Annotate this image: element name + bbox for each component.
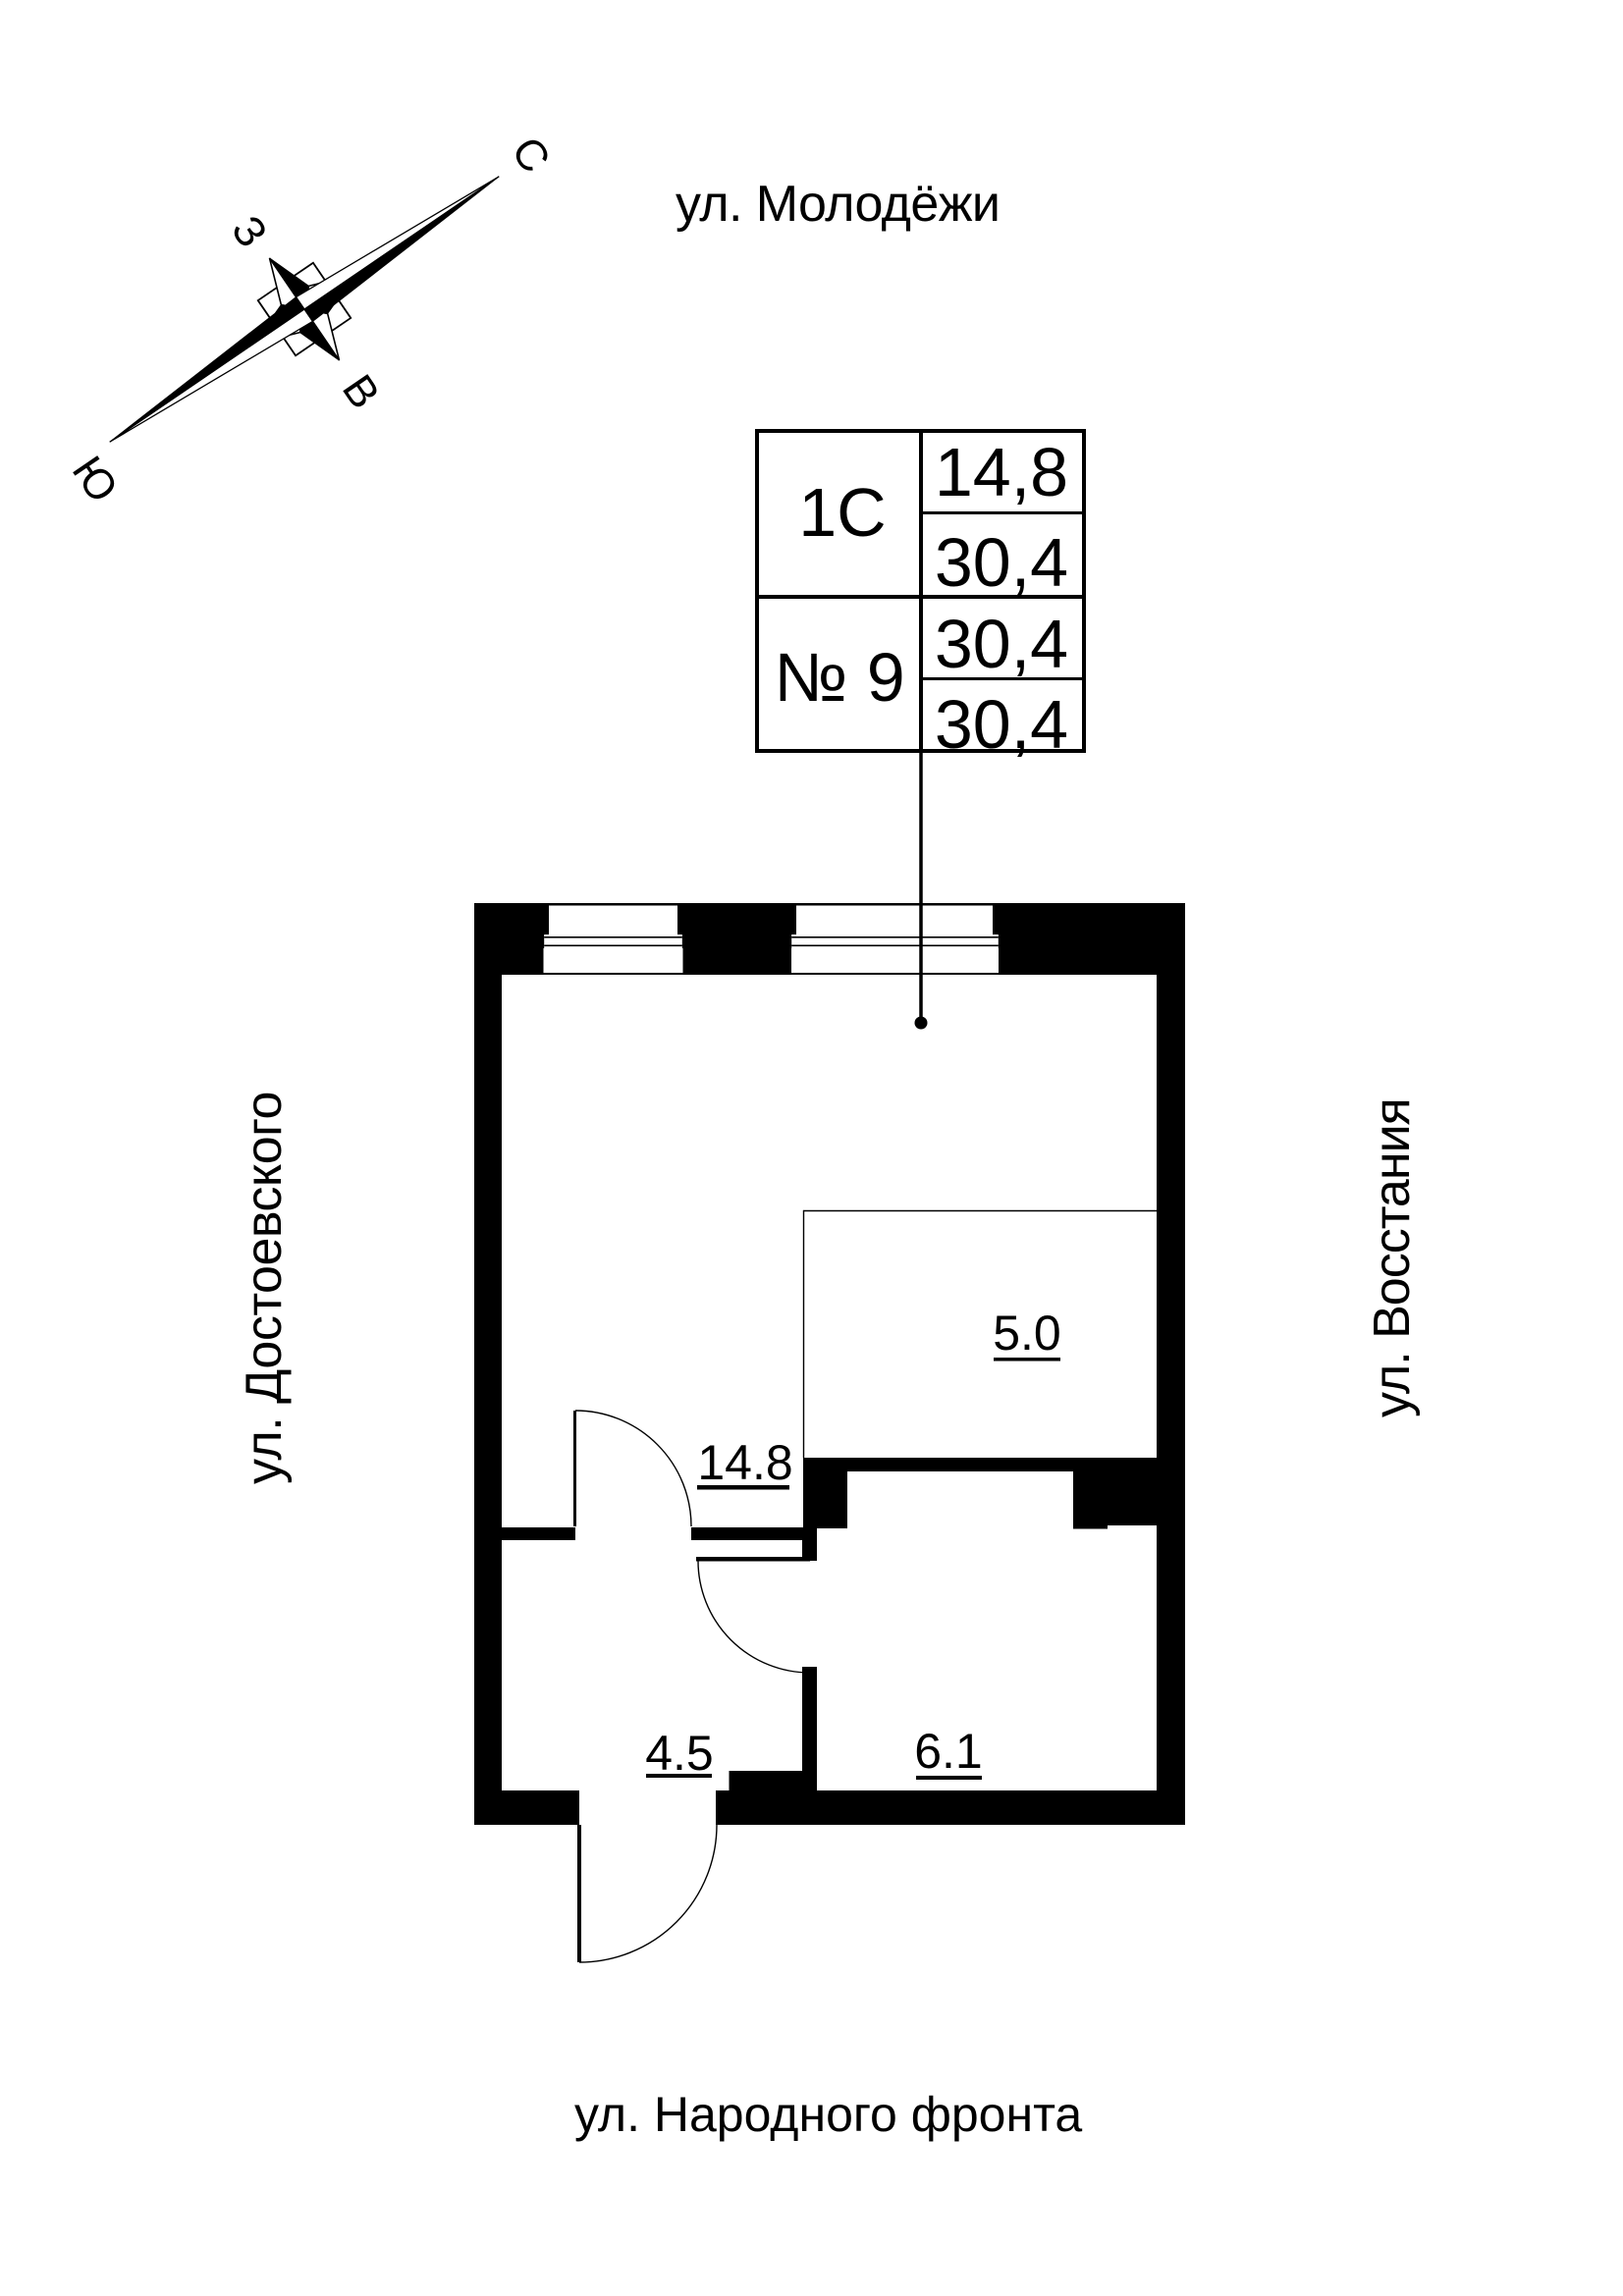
svg-text:14,8: 14,8 (935, 434, 1068, 510)
svg-text:30,4: 30,4 (935, 606, 1068, 682)
svg-text:6.1: 6.1 (914, 1724, 983, 1779)
svg-text:ул. Народного фронта: ул. Народного фронта (574, 2087, 1082, 2142)
svg-text:5.0: 5.0 (993, 1306, 1061, 1361)
svg-text:14.8: 14.8 (697, 1435, 792, 1490)
svg-text:ул. Молодёжи: ул. Молодёжи (676, 176, 1000, 233)
svg-text:№ 9: № 9 (774, 639, 904, 716)
svg-text:1С: 1С (798, 474, 886, 551)
svg-text:4.5: 4.5 (645, 1726, 714, 1781)
svg-text:ул. Восстания: ул. Восстания (1364, 1098, 1421, 1417)
svg-text:ул. Достоевского: ул. Достоевского (236, 1092, 293, 1484)
svg-text:30,4: 30,4 (935, 686, 1068, 763)
svg-text:30,4: 30,4 (935, 524, 1068, 601)
